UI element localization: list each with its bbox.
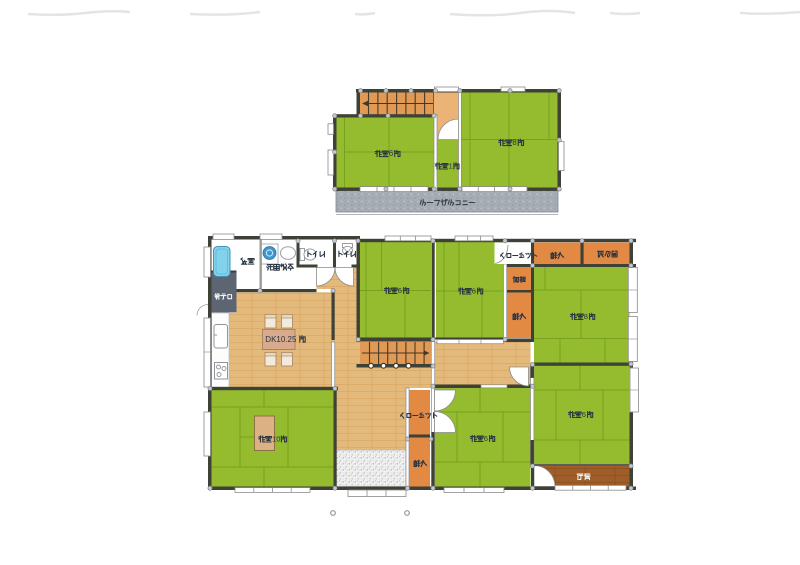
svg-text:1: 1 — [449, 162, 453, 171]
svg-text:8: 8 — [512, 138, 516, 147]
svg-text:6: 6 — [484, 434, 488, 443]
svg-text:DK10.25: DK10.25 — [265, 335, 297, 344]
svg-text:6: 6 — [582, 410, 586, 419]
svg-text:10: 10 — [272, 435, 280, 444]
svg-text:6: 6 — [472, 287, 476, 296]
svg-text:6: 6 — [389, 149, 393, 158]
svg-text:8: 8 — [584, 312, 588, 321]
svg-text:6: 6 — [398, 286, 402, 295]
